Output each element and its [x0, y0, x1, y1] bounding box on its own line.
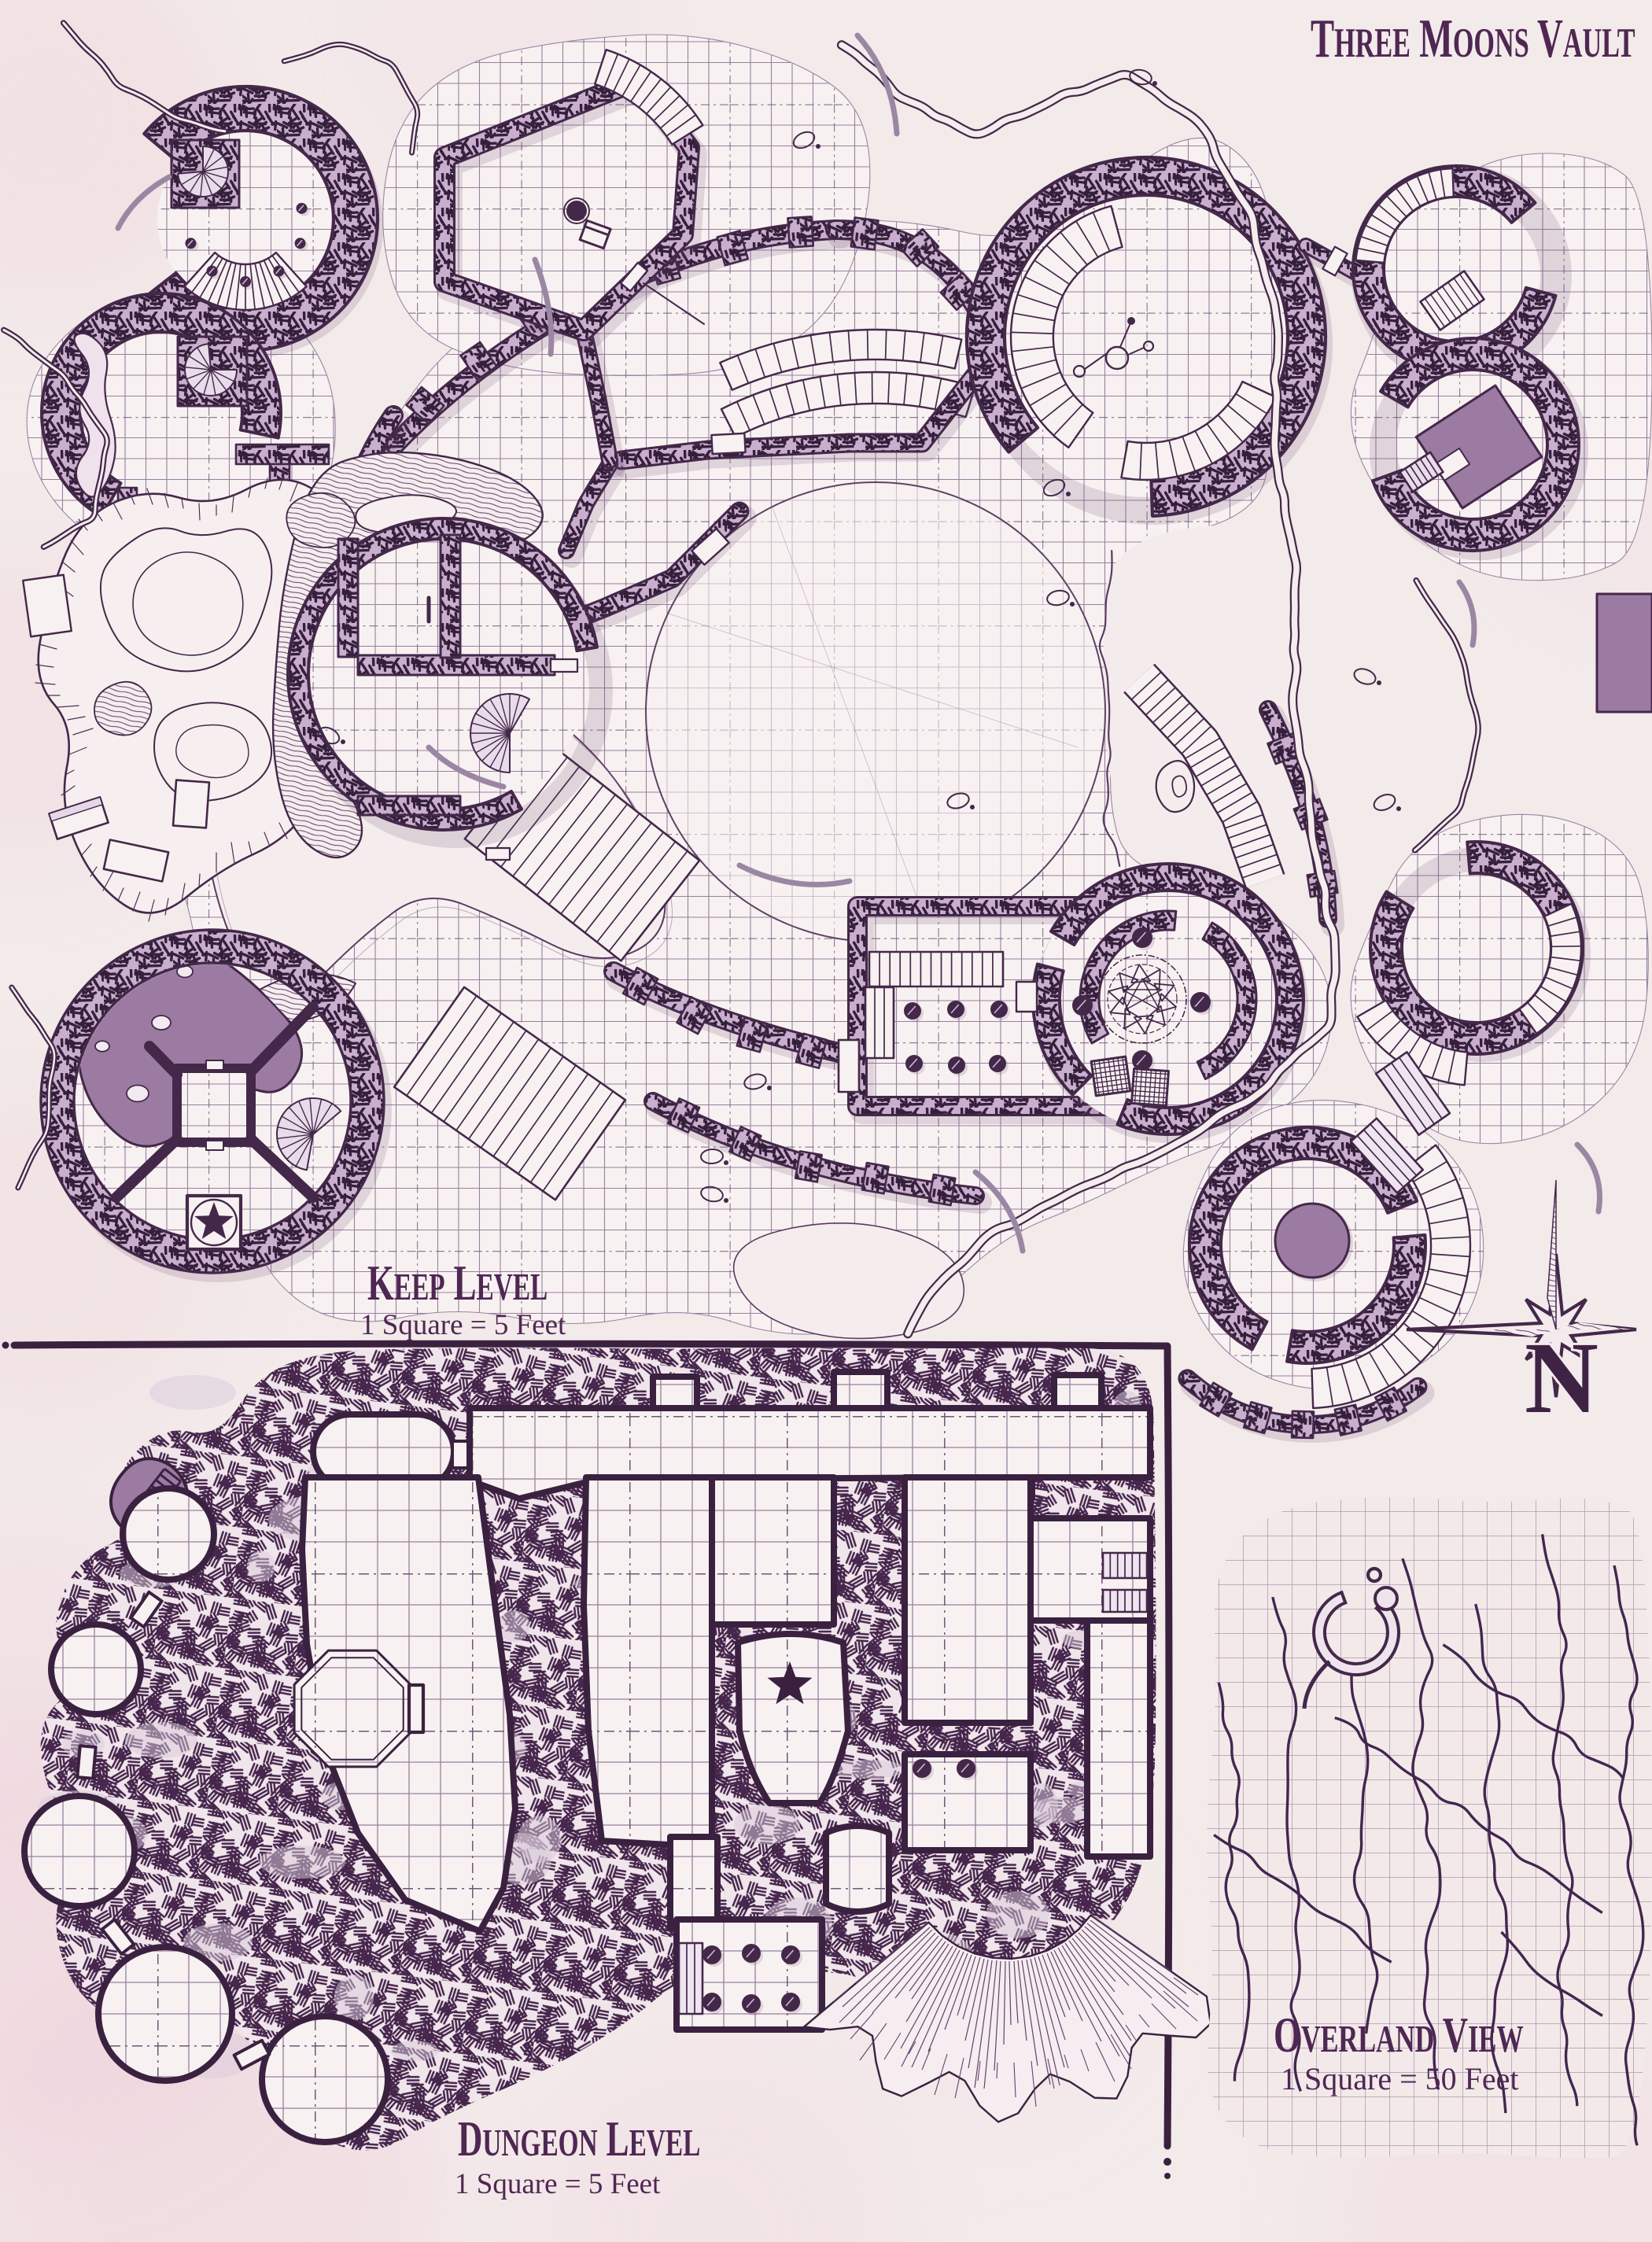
svg-text:1 Square = 5 Feet: 1 Square = 5 Feet — [455, 2168, 661, 2200]
svg-text:1 Square = 50 Feet: 1 Square = 50 Feet — [1281, 2061, 1519, 2096]
svg-text:N: N — [1525, 1322, 1599, 1435]
svg-text:1 Square = 5 Feet: 1 Square = 5 Feet — [360, 1309, 566, 1341]
